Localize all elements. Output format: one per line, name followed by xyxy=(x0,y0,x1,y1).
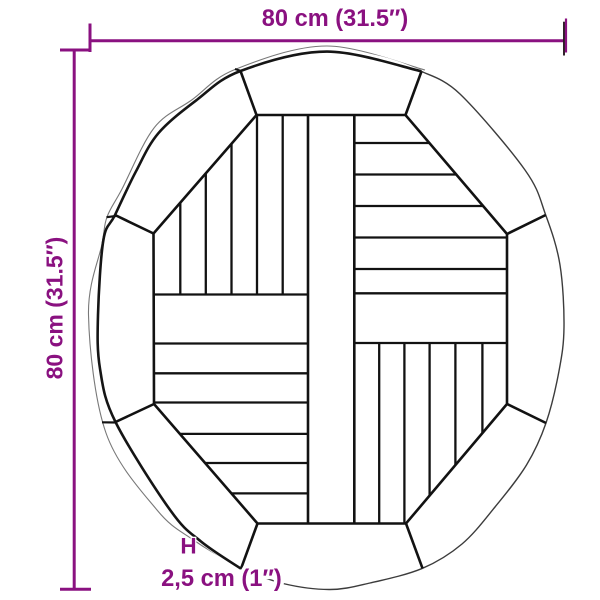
svg-text:2,5 cm (1″): 2,5 cm (1″) xyxy=(161,566,282,592)
svg-text:H: H xyxy=(180,533,196,558)
svg-text:80 cm (31.5″): 80 cm (31.5″) xyxy=(42,237,68,380)
svg-text:80 cm (31.5″): 80 cm (31.5″) xyxy=(262,6,408,32)
